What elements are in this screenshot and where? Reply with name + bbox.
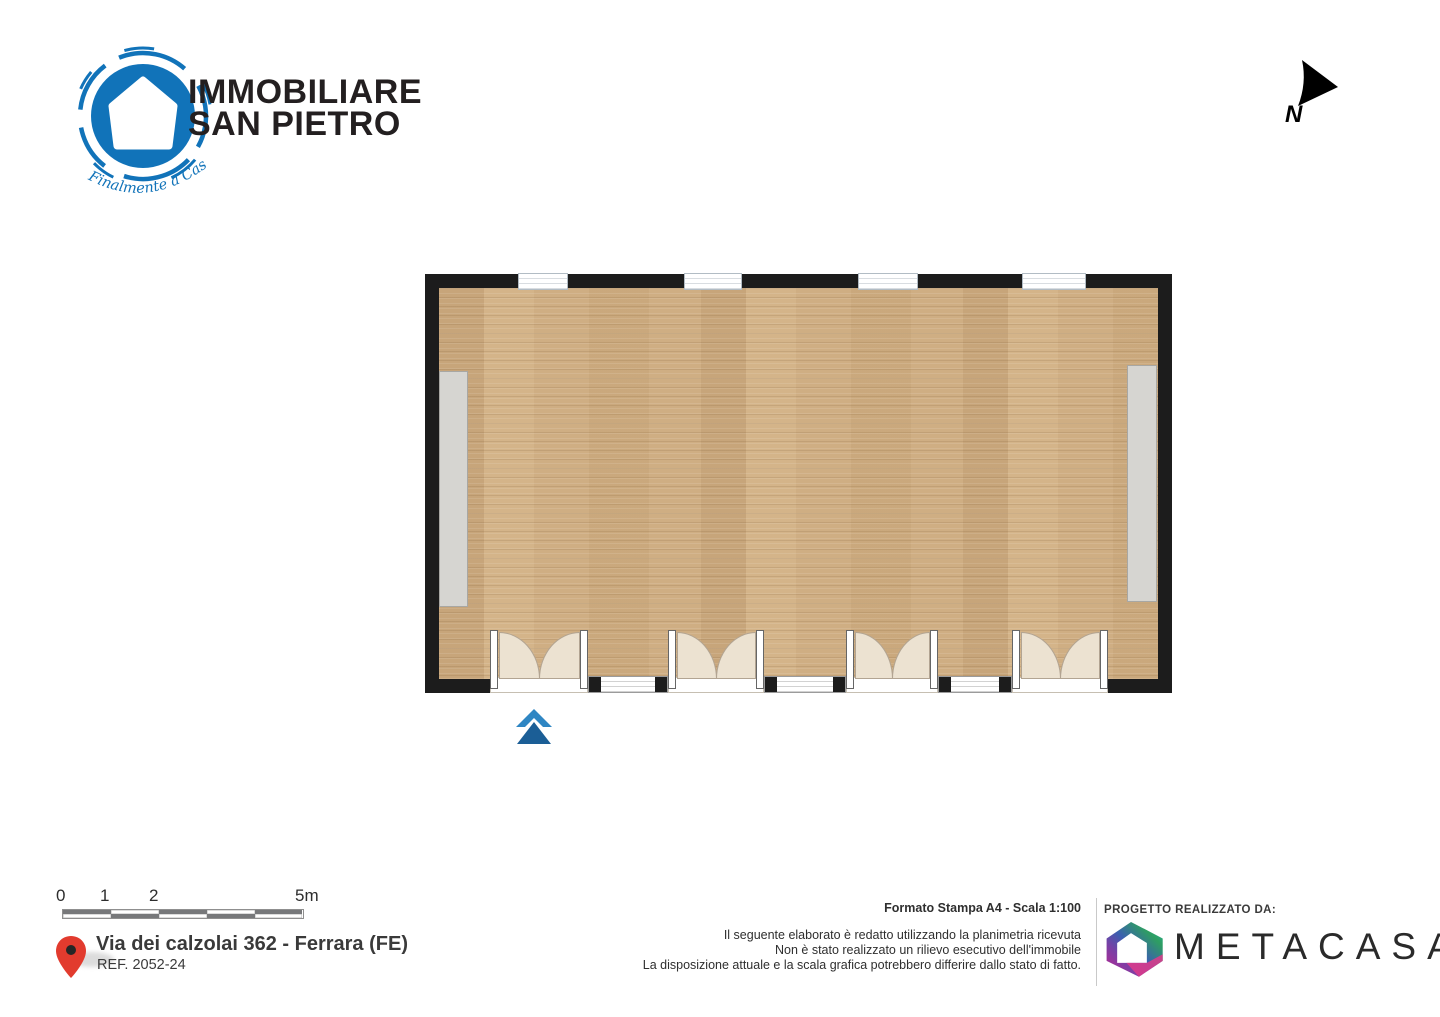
door-4-threshold [1012, 677, 1108, 693]
disclaimer-line-2: Non è stato realizzato un rilievo esecut… [601, 943, 1081, 958]
wall-stub [999, 677, 1011, 692]
window-bottom-2 [764, 676, 846, 693]
property-reference: REF. 2052-24 [97, 957, 186, 973]
entrance-arrow-icon [514, 708, 554, 748]
door-4-jamb-left [1012, 630, 1020, 689]
window-bottom-1 [588, 676, 668, 693]
window-top-4 [1022, 273, 1086, 290]
credits-heading: PROGETTO REALIZZATO DA: [1104, 904, 1276, 916]
property-address: Via dei calzolai 362 - Ferrara (FE) [96, 933, 408, 956]
wall-stub [833, 677, 845, 692]
parquet-floor [439, 288, 1158, 679]
wall-left [425, 274, 439, 693]
window-top-3 [858, 273, 918, 290]
scale-segment [159, 914, 207, 918]
window-top-1 [518, 273, 568, 290]
door-2-jamb-right [756, 630, 764, 689]
scale-segment [63, 914, 111, 918]
location-pin-icon [52, 934, 90, 980]
scale-segment [111, 914, 159, 918]
door-3-jamb-left [846, 630, 854, 689]
north-arrow-icon: N [1281, 50, 1343, 128]
wall-stub [655, 677, 667, 692]
disclaimer-line-1: Il seguente elaborato è redatto utilizza… [601, 928, 1081, 943]
metacasa-brand: METACASA [1174, 926, 1440, 968]
scale-segment [207, 914, 255, 918]
scale-label-2: 2 [149, 886, 158, 906]
cabinet-right [1127, 365, 1157, 602]
wall-right [1158, 274, 1172, 693]
disclaimer-line-3: La disposizione attuale e la scala grafi… [601, 958, 1081, 973]
agency-name-line1: IMMOBILIARE [188, 76, 422, 108]
scale-bar [62, 909, 304, 919]
footer-divider [1096, 898, 1097, 986]
door-1-jamb-left [490, 630, 498, 689]
floorplan [425, 274, 1172, 693]
scale-label-0: 0 [56, 886, 65, 906]
scale-segment [255, 914, 302, 918]
agency-name-line2: SAN PIETRO [188, 108, 422, 140]
window-bottom-3 [938, 676, 1012, 693]
door-4-jamb-right [1100, 630, 1108, 689]
window-top-2 [684, 273, 742, 290]
scale-label-5m: 5m [295, 886, 319, 906]
door-3-threshold [846, 677, 938, 693]
door-2-threshold [668, 677, 764, 693]
door-3-jamb-right [930, 630, 938, 689]
door-1-threshold [490, 677, 588, 693]
cabinet-left [439, 371, 468, 607]
wall-stub [939, 677, 951, 692]
wall-stub [589, 677, 601, 692]
north-label: N [1285, 101, 1303, 128]
scale-label-1: 1 [100, 886, 109, 906]
print-format: Formato Stampa A4 - Scala 1:100 [601, 901, 1081, 915]
print-info: Formato Stampa A4 - Scala 1:100 Il segue… [601, 901, 1081, 972]
metacasa-logo-icon [1100, 917, 1166, 981]
agency-name: IMMOBILIARE SAN PIETRO [188, 76, 422, 140]
door-1-jamb-right [580, 630, 588, 689]
wall-stub [765, 677, 777, 692]
door-2-jamb-left [668, 630, 676, 689]
